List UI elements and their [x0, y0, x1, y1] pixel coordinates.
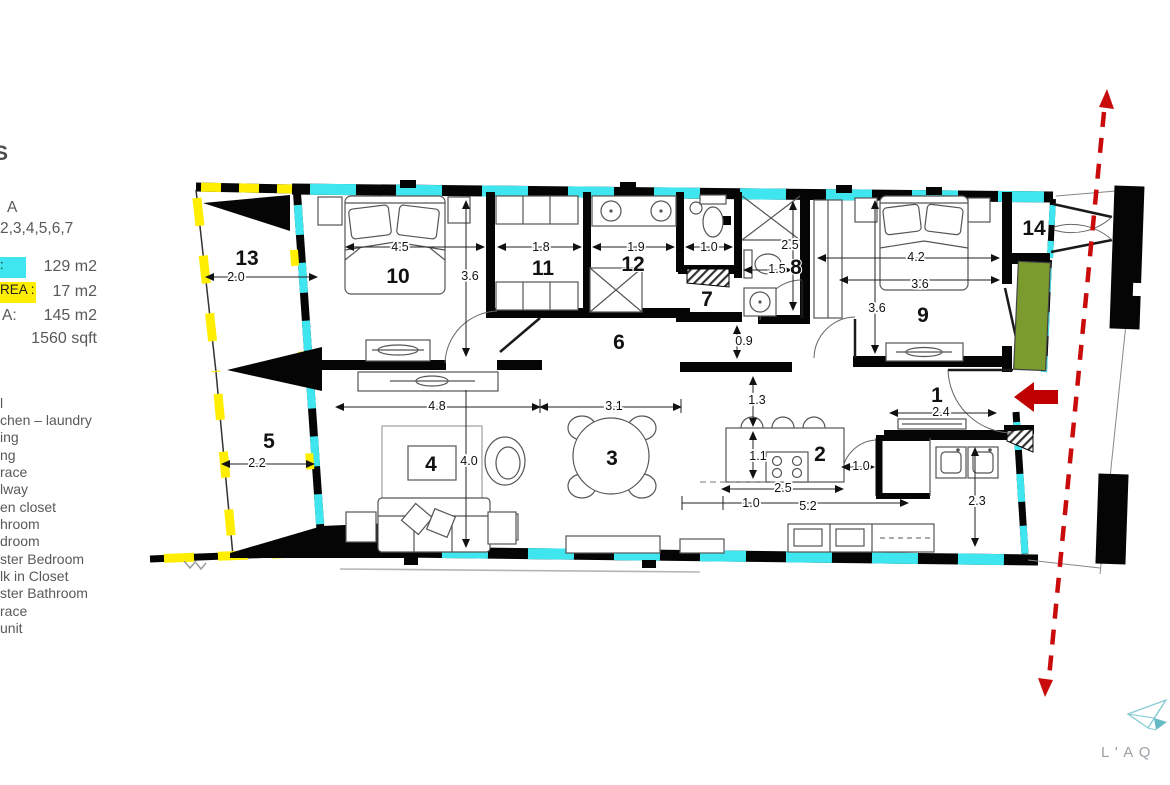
- hatch-wedge-wc: [687, 269, 729, 287]
- dim-room10-width: 4.5: [391, 240, 408, 254]
- washer-dryer: [936, 447, 998, 478]
- planter-green: [1014, 261, 1051, 370]
- entry-pantry: [876, 438, 930, 496]
- dim-room9-width-inner: 3.6: [911, 277, 928, 291]
- dim-terrace5-width: 2.2: [248, 456, 265, 470]
- room-label-1: 1: [931, 384, 943, 407]
- dim-island-length: 2.5: [774, 481, 791, 495]
- room-label-14: 14: [1022, 217, 1046, 240]
- dim-living-height: 4.0: [460, 454, 477, 468]
- armchair: [485, 437, 525, 485]
- dim-room9-height: 3.6: [868, 301, 885, 315]
- sink-bath8: [744, 288, 776, 316]
- room-label-13: 13: [235, 247, 258, 270]
- dim-terrace13-width: 2.0: [227, 270, 244, 284]
- toilet-wc: [690, 195, 726, 237]
- room-label-10: 10: [386, 265, 409, 288]
- route-arrowhead-down-icon: [1038, 678, 1053, 697]
- room-label-2: 2: [814, 443, 826, 466]
- room-label-4: 4: [425, 453, 437, 476]
- room-label-8: 8: [790, 256, 802, 279]
- double-vanity: [592, 196, 676, 226]
- dim-dining-width: 3.1: [605, 399, 622, 413]
- brand-wordmark: L'AQ: [1101, 744, 1156, 761]
- dim-living-width: 4.8: [428, 399, 445, 413]
- dim-bath8-width: 1.5: [768, 262, 785, 276]
- ground-shadow-line: [340, 569, 700, 572]
- wardrobe-bedroom9: [814, 200, 842, 318]
- dim-island-clearance: 1.3: [748, 393, 765, 407]
- brand-logo-icon: [1128, 700, 1167, 730]
- room-label-5: 5: [263, 430, 275, 453]
- dim-bath8-height: 2.5: [781, 238, 798, 252]
- walkway-wall-top: [1109, 186, 1144, 330]
- console-living: [358, 372, 498, 391]
- dresser-bedroom9: [886, 343, 963, 361]
- room-label-12: 12: [621, 253, 644, 276]
- dim-entry-closet: 1.0: [852, 459, 869, 473]
- entry-shelf: [898, 419, 966, 429]
- room14-double-doors: [1051, 204, 1112, 252]
- shower-bath8: [742, 196, 800, 240]
- route-arrowhead-up-icon: [1099, 89, 1114, 109]
- dim-kitchen-run-b: 5.2: [799, 499, 816, 513]
- kitchen-counters: [488, 482, 934, 553]
- dim-closet11-width: 1.8: [532, 240, 549, 254]
- room-label-7: 7: [701, 288, 713, 311]
- wall-wedge-top-left: [203, 195, 290, 231]
- walkway-wall-bottom: [1095, 474, 1128, 565]
- furniture: [318, 195, 998, 553]
- dim-room10-height: 3.6: [461, 269, 478, 283]
- dim-hall-gap: 0.9: [735, 334, 752, 348]
- entry-arrow-icon: [1014, 382, 1058, 412]
- floor-plan: 2.0 4.5 3.6 1.8 1.9 1.0 2.5 1.5 0.9 4.2 …: [0, 0, 1170, 785]
- dim-bath12-width: 1.9: [627, 240, 644, 254]
- walkway: [1028, 186, 1144, 574]
- dim-kitchen-depth: 2.3: [968, 494, 985, 508]
- dresser-master: [366, 340, 430, 361]
- room-label-11: 11: [532, 257, 555, 280]
- dim-room9-width: 4.2: [907, 250, 924, 264]
- kitchen-island: [726, 417, 844, 482]
- dim-wc-width: 1.0: [700, 240, 717, 254]
- dim-entry-width: 2.4: [932, 405, 949, 419]
- corner-chevrons-icon: [184, 561, 206, 569]
- room-label-9: 9: [917, 304, 929, 327]
- room-label-6: 6: [613, 331, 625, 354]
- dim-island-depth: 1.1: [749, 449, 766, 463]
- dim-kitchen-run-a: 1.0: [742, 496, 759, 510]
- floorplan-slide: { "left_panel": { "heading_fragment": "S…: [0, 0, 1170, 785]
- room-label-3: 3: [606, 447, 618, 470]
